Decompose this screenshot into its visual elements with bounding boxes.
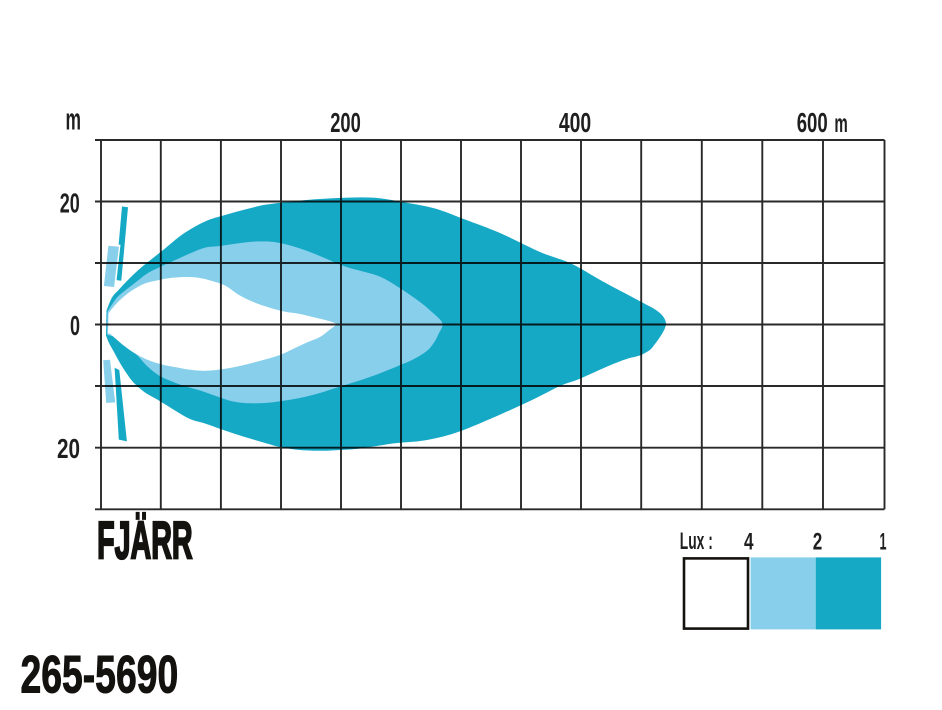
svg-text:600: 600 bbox=[797, 107, 828, 138]
svg-text:20: 20 bbox=[57, 433, 80, 464]
svg-text:4: 4 bbox=[744, 528, 754, 555]
svg-text:0: 0 bbox=[70, 310, 80, 341]
svg-text:Lux :: Lux : bbox=[680, 528, 713, 555]
svg-text:200: 200 bbox=[330, 107, 361, 138]
svg-text:FJÄRR: FJÄRR bbox=[97, 512, 193, 571]
svg-text:2: 2 bbox=[813, 528, 823, 555]
svg-text:m: m bbox=[66, 102, 82, 137]
svg-text:20: 20 bbox=[60, 187, 80, 218]
svg-text:265-5690: 265-5690 bbox=[21, 646, 179, 705]
svg-text:400: 400 bbox=[559, 107, 591, 138]
svg-text:m: m bbox=[834, 108, 847, 138]
svg-text:1: 1 bbox=[880, 528, 887, 555]
